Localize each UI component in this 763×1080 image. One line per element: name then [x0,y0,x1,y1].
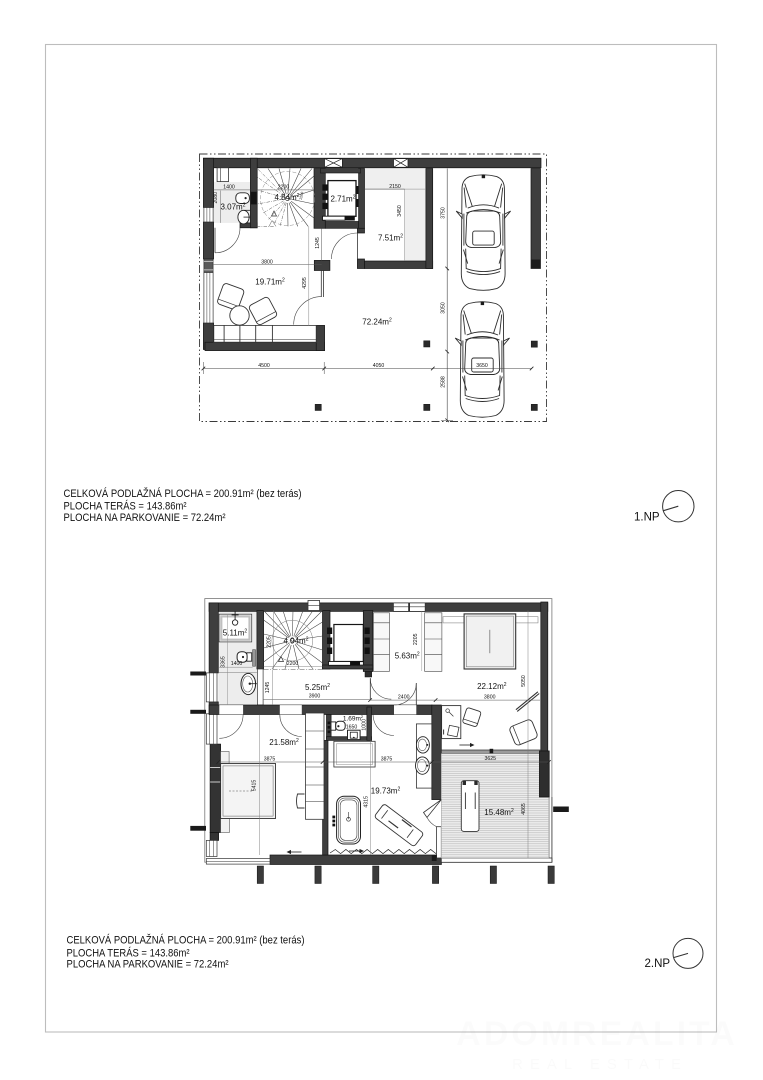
svg-text:3875: 3875 [381,757,393,763]
svg-text:3450: 3450 [397,205,403,217]
svg-text:5.25m2: 5.25m2 [305,683,330,692]
svg-text:1245: 1245 [265,682,271,694]
svg-text:5.63m2: 5.63m2 [395,652,420,661]
svg-text:3050: 3050 [440,302,446,314]
svg-text:4315: 4315 [363,796,369,808]
svg-text:72.24m2: 72.24m2 [362,318,392,327]
svg-text:2200: 2200 [278,185,290,191]
svg-text:3365: 3365 [221,656,227,668]
svg-text:2205: 2205 [413,633,419,645]
svg-text:7.51m2: 7.51m2 [378,234,403,243]
svg-text:3875: 3875 [264,757,276,763]
svg-text:3800: 3800 [484,694,496,700]
svg-text:1400: 1400 [223,185,235,191]
svg-text:4.84m2: 4.84m2 [274,193,299,202]
svg-text:4065: 4065 [521,803,527,815]
svg-text:3900: 3900 [309,694,321,700]
svg-text:1400: 1400 [231,661,243,667]
svg-text:2400: 2400 [398,694,410,700]
svg-text:CELKOVÁ PODLAŽNÁ PLOCHA = 200.: CELKOVÁ PODLAŽNÁ PLOCHA = 200.91m² (bez … [64,487,302,500]
svg-text:19.73m2: 19.73m2 [371,787,401,796]
svg-text:PLOCHA TERÁS = 143.86m²: PLOCHA TERÁS = 143.86m² [67,946,190,959]
svg-text:1000: 1000 [361,719,367,731]
svg-text:2205: 2205 [266,636,272,648]
svg-text:PLOCHA TERÁS = 143.86m²: PLOCHA TERÁS = 143.86m² [64,500,187,513]
svg-text:5415: 5415 [252,780,258,792]
svg-text:4.94m2: 4.94m2 [283,637,308,646]
svg-text:PLOCHA NA PARKOVANIE = 72.24m²: PLOCHA NA PARKOVANIE = 72.24m² [64,512,226,524]
svg-text:REAL ESTATE: REAL ESTATE [512,1056,688,1073]
svg-text:CELKOVÁ PODLAŽNÁ PLOCHA = 200.: CELKOVÁ PODLAŽNÁ PLOCHA = 200.91m² (bez … [67,934,305,947]
svg-text:1650: 1650 [346,724,358,730]
svg-text:22.12m2: 22.12m2 [477,682,507,691]
svg-text:3800: 3800 [261,259,273,265]
svg-text:1.NP: 1.NP [634,512,660,524]
svg-text:ADOMREALITA: ADOMREALITA [456,1015,738,1053]
svg-text:19.71m2: 19.71m2 [255,278,285,287]
svg-text:2150: 2150 [389,184,401,190]
svg-text:4500: 4500 [258,363,270,369]
svg-text:5050: 5050 [521,675,527,687]
svg-text:15.48m2: 15.48m2 [484,808,514,817]
svg-text:4050: 4050 [373,363,385,369]
svg-text:2588: 2588 [440,376,446,388]
svg-text:4295: 4295 [302,277,308,289]
svg-text:3625: 3625 [485,756,497,762]
svg-text:5.11m2: 5.11m2 [223,629,248,638]
svg-text:2200: 2200 [287,661,299,667]
svg-text:PLOCHA NA PARKOVANIE = 72.24m²: PLOCHA NA PARKOVANIE = 72.24m² [67,959,229,971]
svg-text:3.07m2: 3.07m2 [220,203,245,212]
svg-text:1245: 1245 [315,237,321,249]
svg-text:2080: 2080 [213,192,219,204]
svg-text:3650: 3650 [476,363,488,369]
svg-text:21.58m2: 21.58m2 [269,738,299,747]
svg-text:2.71m2: 2.71m2 [330,195,355,204]
svg-text:3750: 3750 [440,207,446,219]
svg-text:2.NP: 2.NP [645,958,671,970]
